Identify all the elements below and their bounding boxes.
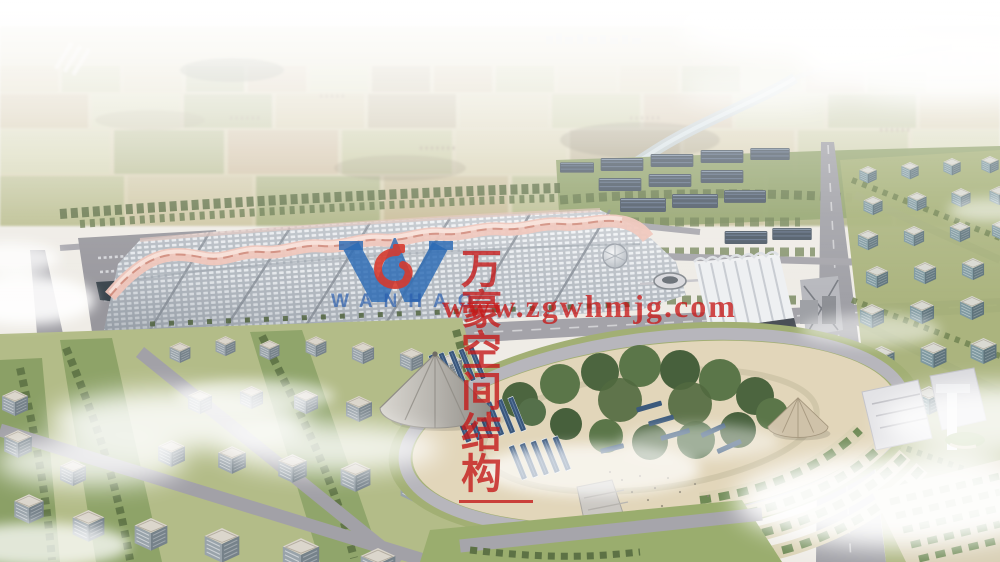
rendered-scene-graphic: [0, 0, 1000, 562]
aerial-rendering: WANHAO 万豪空间结构 www.zgwhmjg.com: [0, 0, 1000, 562]
atmosphere-haze: [0, 0, 1000, 562]
